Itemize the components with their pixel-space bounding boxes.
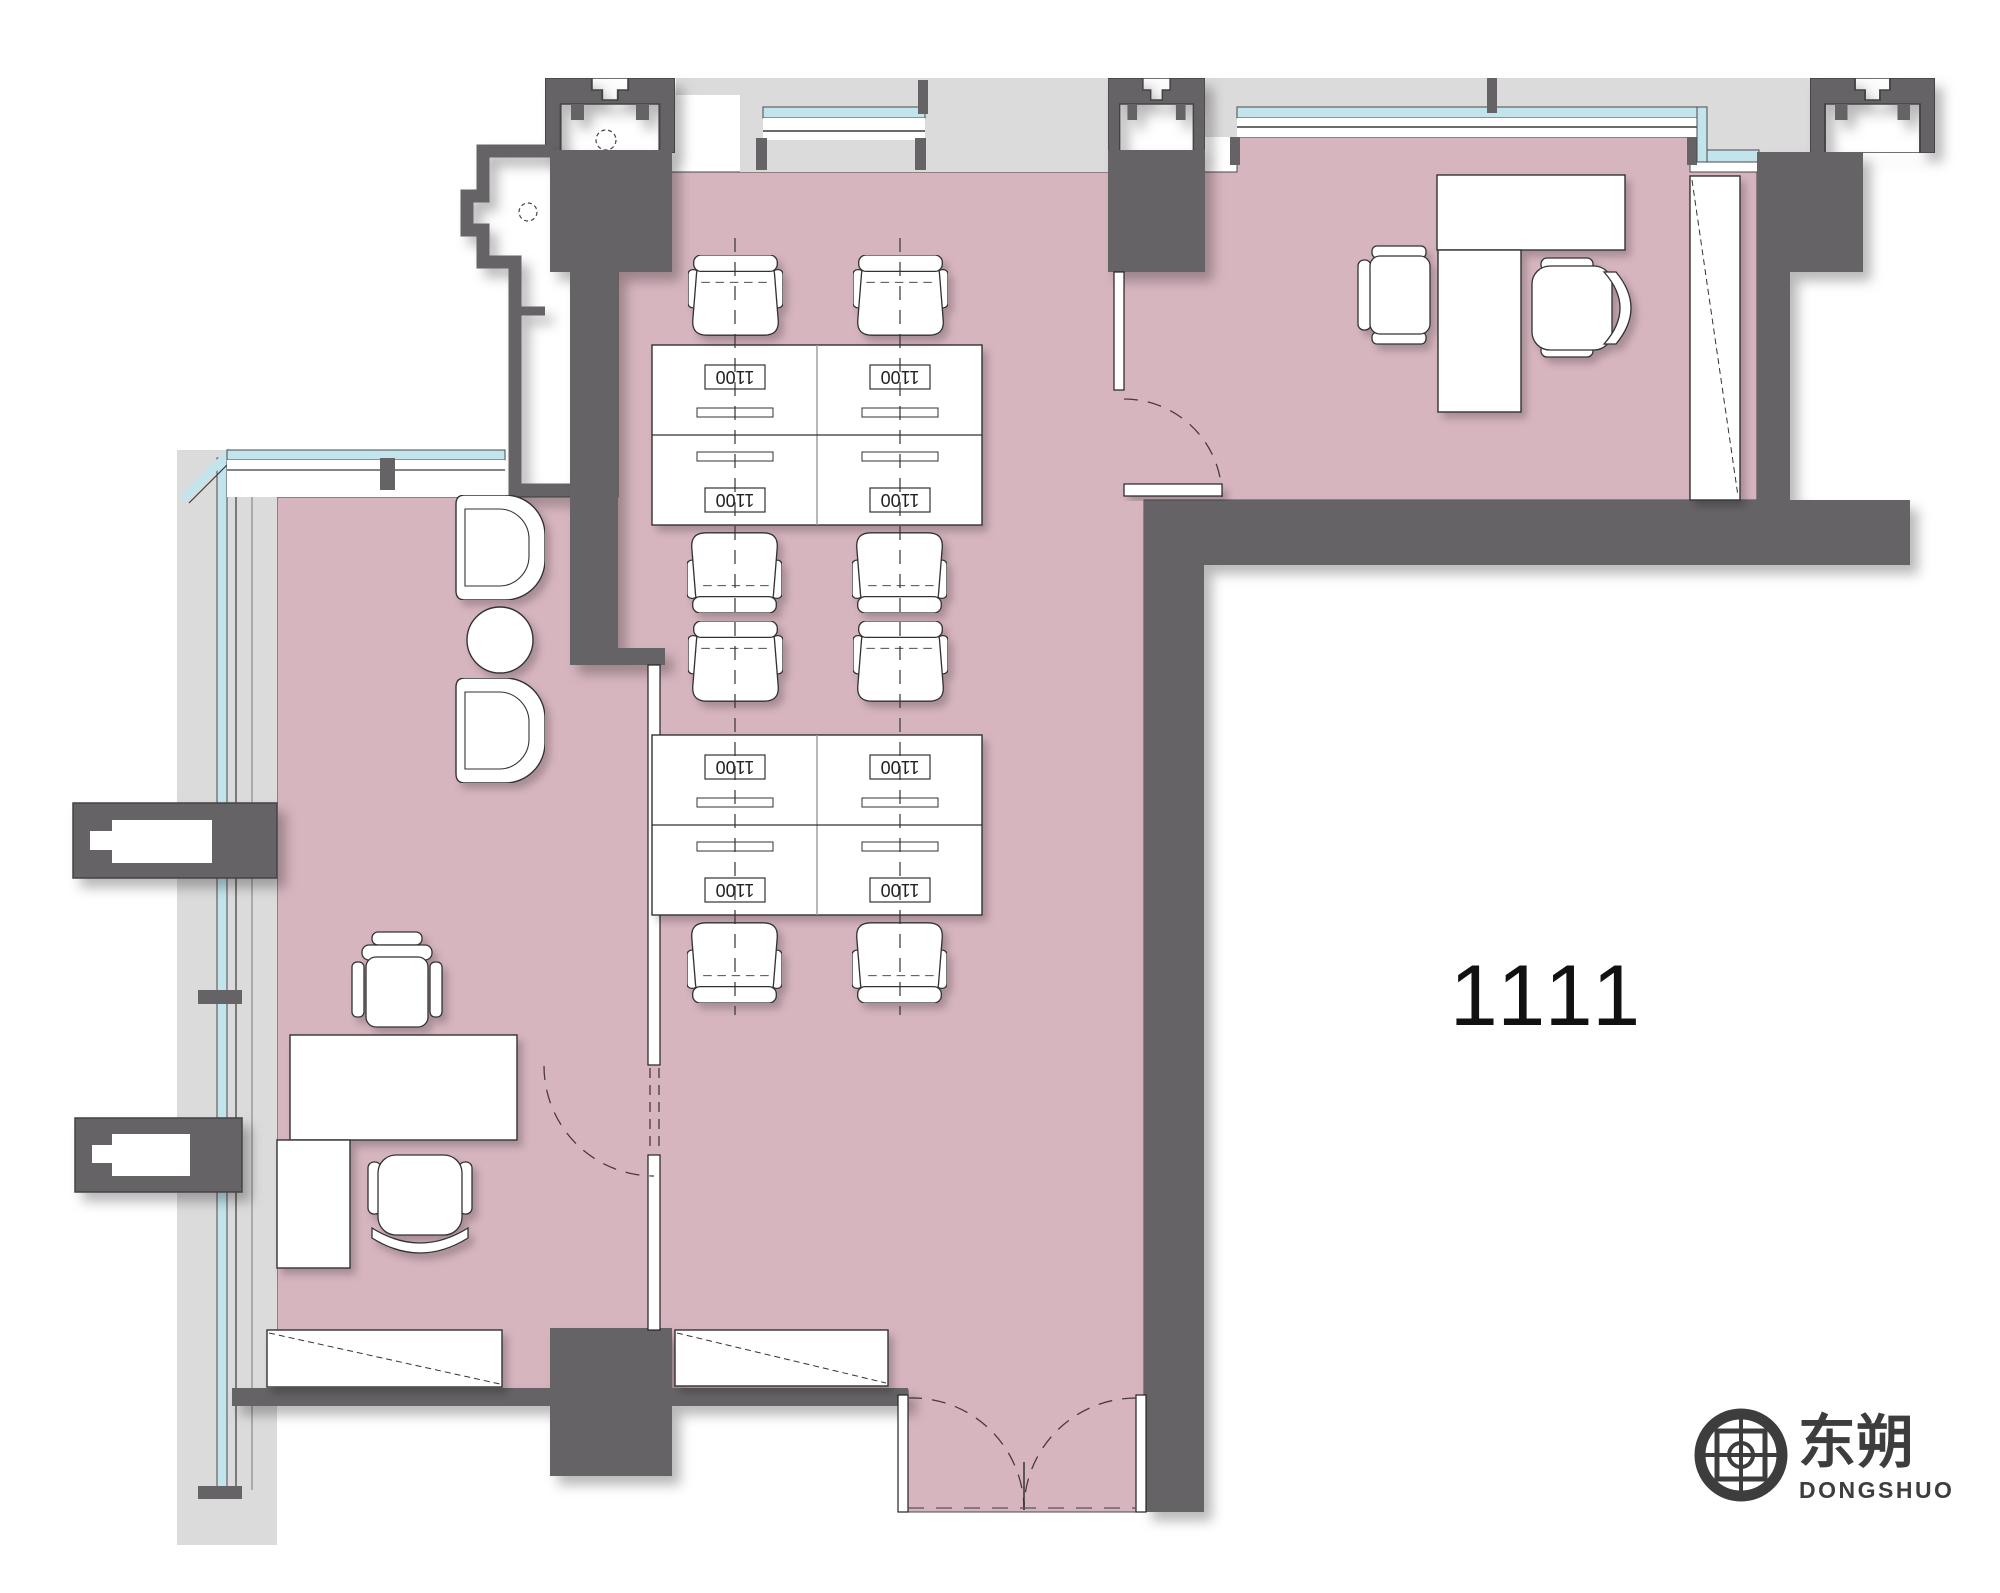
floor-area: [277, 137, 1757, 1512]
window-mullion: [915, 138, 926, 170]
door-jamb: [898, 1395, 908, 1512]
window-mullion: [198, 1486, 242, 1499]
window-glazing: [763, 107, 925, 118]
room-number-label: 1111: [1450, 948, 1646, 1044]
tall-cabinet: [1690, 176, 1740, 500]
wall-bottom-right: [1144, 500, 1910, 565]
window-sill: [763, 118, 925, 140]
guest-chair: [1358, 246, 1430, 344]
facade-column: [1810, 78, 1935, 153]
wall-column: [1108, 150, 1205, 272]
lounge-chair: [456, 495, 545, 600]
floor-pink: [277, 137, 1757, 1512]
door-leaf: [1124, 484, 1222, 496]
low-cabinet: [675, 1330, 888, 1386]
column-symbol: [519, 203, 537, 221]
wall-column: [550, 150, 672, 272]
logo-target-icon: [1695, 1409, 1787, 1501]
wall-right: [1757, 272, 1790, 510]
office-desk: [1437, 175, 1625, 250]
window-mullion: [1230, 137, 1240, 165]
slab-strip: [676, 78, 1108, 95]
column-symbol: [596, 130, 616, 150]
floor-plan-canvas: 1100 1100 1100 1100 1100 1100 1100 1100: [0, 0, 2000, 1593]
logo: 东朔 DONGSHUO: [1695, 1408, 1954, 1503]
floor-plan-drawing: 1100 1100 1100 1100 1100 1100 1100 1100: [0, 0, 2000, 1593]
window-mullion: [1687, 137, 1697, 165]
wall-corridor-right: [1144, 565, 1204, 1512]
logo-text-cn: 东朔: [1798, 1408, 1914, 1476]
wall-stub: [570, 648, 665, 665]
slab-bay3: [1697, 78, 1810, 162]
low-cabinet: [267, 1330, 502, 1387]
window-mullion: [198, 990, 242, 1004]
top-facade: [545, 78, 1935, 172]
door-jamb: [1136, 1395, 1146, 1512]
side-table: [467, 607, 533, 673]
window-mullion: [380, 458, 395, 490]
logo-text-en: DONGSHUO: [1799, 1477, 1954, 1503]
lounge-chair: [456, 678, 545, 783]
window-mullion: [1487, 78, 1497, 113]
window-glazing-step: [1697, 107, 1707, 162]
window-glazing-left: [217, 458, 227, 1493]
glass-partition: [1114, 272, 1124, 390]
open-plan-storage: [675, 1330, 888, 1386]
window-glazing-room: [227, 450, 505, 460]
wall-column-bottom: [550, 1328, 672, 1476]
manager-desk-return: [277, 1140, 350, 1268]
glass-partition: [648, 1155, 660, 1330]
office-desk-return: [1438, 250, 1521, 412]
facade-column: [1108, 78, 1205, 153]
wall-main-left: [570, 272, 618, 650]
window-mullion: [756, 138, 767, 170]
window-glazing-step: [1707, 150, 1759, 162]
wall-column: [1757, 152, 1863, 272]
window-sill: [227, 460, 505, 497]
manager-desk: [290, 1035, 517, 1140]
guest-chair: [352, 932, 442, 1027]
window-glazing: [1237, 107, 1697, 118]
window-mullion: [918, 80, 928, 114]
